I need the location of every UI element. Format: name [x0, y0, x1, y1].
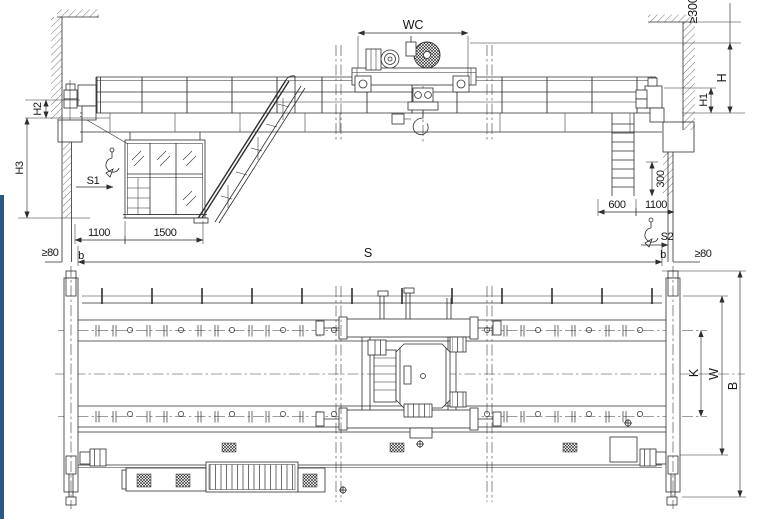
hook-symbol-right	[645, 218, 658, 247]
dim-label-h2: H2	[32, 102, 44, 116]
plan-walkway	[78, 419, 666, 494]
elevation-view: WC ≥300 H H1 H2 H3 S1 1100 1500 30	[14, 0, 745, 266]
hoist-trolley-elevation	[352, 36, 476, 142]
dim-label-top-clearance: ≥300	[686, 0, 700, 23]
dim-label-b: B	[726, 382, 740, 390]
hook-symbol-left	[106, 148, 119, 177]
plan-top-railing	[82, 288, 662, 304]
left-end-truck-plan	[64, 266, 78, 509]
access-ladder	[612, 113, 634, 196]
dim-label-600: 600	[608, 199, 625, 211]
dim-label-clearance-left: ≥80	[41, 247, 58, 259]
hoist-trolley-plan	[316, 288, 501, 448]
drawing-sheet: WC ≥300 H H1 H2 H3 S1 1100 1500 30	[0, 0, 784, 519]
bolt-mark	[339, 486, 347, 494]
panel-box	[610, 437, 637, 462]
dim-label-1100-left: 1100	[88, 227, 110, 239]
crane-general-arrangement-drawing: WC ≥300 H H1 H2 H3 S1 1100 1500 30	[0, 0, 784, 519]
dim-label-b-left: b	[78, 250, 84, 262]
dim-label-clearance-right: ≥80	[694, 248, 711, 260]
plan-view: K W B	[55, 266, 746, 509]
dim-label-1100-right: 1100	[645, 199, 667, 211]
operator-cabin	[123, 132, 207, 218]
dim-label-h1: H1	[698, 93, 710, 107]
dim-label-s1: S1	[87, 175, 100, 187]
dim-label-h: H	[715, 73, 729, 82]
dim-label-w: W	[707, 368, 721, 380]
dim-label-s2: S2	[661, 231, 674, 243]
dim-label-k: K	[687, 368, 701, 377]
travel-drive-motor-right	[640, 449, 666, 466]
right-end-truck-plan	[666, 266, 680, 509]
dim-label-wc: WC	[403, 18, 424, 32]
dim-label-b-right: b	[660, 249, 666, 261]
dim-label-span: S	[364, 246, 372, 260]
right-wall-section	[648, 15, 695, 263]
dim-label-300: 300	[655, 170, 667, 187]
elevation-dimensions: WC ≥300 H H1 H2 H3 S1 1100 1500 30	[14, 0, 745, 266]
travel-drive-motor-left	[80, 449, 106, 466]
dim-label-h3: H3	[14, 161, 26, 175]
rope-anchor-mark	[416, 440, 424, 448]
dim-label-1500: 1500	[154, 227, 177, 239]
